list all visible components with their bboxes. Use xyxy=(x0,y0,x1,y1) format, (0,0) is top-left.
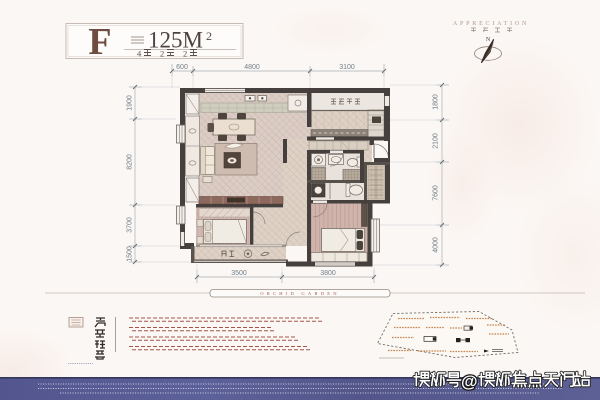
svg-text:2: 2 xyxy=(160,49,164,59)
svg-text:ORCHID GARDEN: ORCHID GARDEN xyxy=(260,291,340,296)
svg-text:APPRECIATION: APPRECIATION xyxy=(453,21,529,27)
svg-text:2: 2 xyxy=(183,49,187,59)
svg-text:2: 2 xyxy=(206,29,212,43)
svg-text:1800: 1800 xyxy=(433,94,440,110)
svg-text:3700: 3700 xyxy=(127,217,134,233)
svg-text:1500: 1500 xyxy=(127,246,134,262)
svg-text:3500: 3500 xyxy=(231,270,247,277)
svg-text:8200: 8200 xyxy=(127,154,134,170)
svg-text:F: F xyxy=(88,21,111,63)
svg-text:2100: 2100 xyxy=(433,133,440,149)
svg-text:3100: 3100 xyxy=(339,64,355,71)
svg-text:4000: 4000 xyxy=(433,237,440,253)
svg-text:125M: 125M xyxy=(148,28,203,53)
svg-text:4800: 4800 xyxy=(244,64,260,71)
svg-text:7600: 7600 xyxy=(433,185,440,201)
svg-text:600: 600 xyxy=(176,64,188,71)
svg-text:1900: 1900 xyxy=(127,95,134,111)
svg-text:N: N xyxy=(486,37,491,43)
svg-text:3800: 3800 xyxy=(320,270,336,277)
